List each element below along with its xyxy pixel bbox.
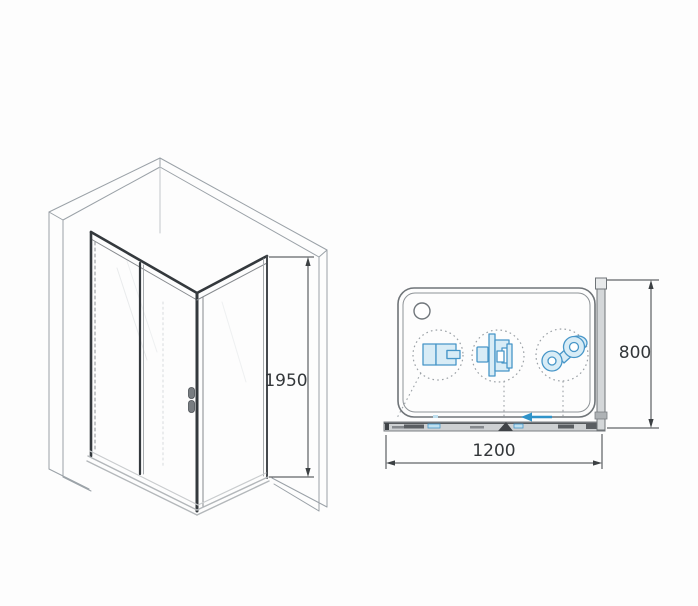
dimension-arrow-left-icon bbox=[386, 460, 395, 465]
dimension-arrow-down-icon bbox=[305, 468, 310, 477]
dimension-arrow-up-icon bbox=[648, 280, 653, 289]
top-view bbox=[384, 278, 607, 431]
detail-callout-roller-bracket bbox=[472, 330, 524, 382]
technical-drawing-canvas: 1950 1200 800 bbox=[0, 0, 698, 606]
bottom-rails bbox=[87, 451, 269, 515]
detail-callout-wall-profile bbox=[413, 330, 463, 380]
enclosure-frame bbox=[91, 232, 267, 511]
roller-bracket-detail-icon bbox=[477, 334, 512, 376]
detail-callout-double-roller bbox=[536, 329, 588, 381]
height-dimension-label: 1950 bbox=[263, 371, 309, 391]
dimension-arrow-right-icon bbox=[593, 460, 602, 465]
width-dimension-label: 1200 bbox=[463, 441, 525, 461]
wall-profile-bar bbox=[595, 278, 607, 430]
height-dimension bbox=[269, 257, 314, 477]
slide-direction-left-arrow-icon bbox=[521, 413, 552, 422]
depth-dimension-label: 800 bbox=[614, 343, 656, 363]
dimension-arrow-down-icon bbox=[648, 419, 653, 428]
wall-profile-section-detail-icon bbox=[423, 344, 460, 365]
double-roller-detail-icon bbox=[542, 336, 587, 371]
isometric-view bbox=[49, 158, 327, 515]
door-handle-icon bbox=[189, 388, 195, 413]
dimension-arrow-up-icon bbox=[305, 257, 310, 266]
drain-hole-icon bbox=[414, 303, 430, 319]
glass-shading bbox=[117, 261, 246, 468]
drawing-svg bbox=[0, 0, 698, 606]
